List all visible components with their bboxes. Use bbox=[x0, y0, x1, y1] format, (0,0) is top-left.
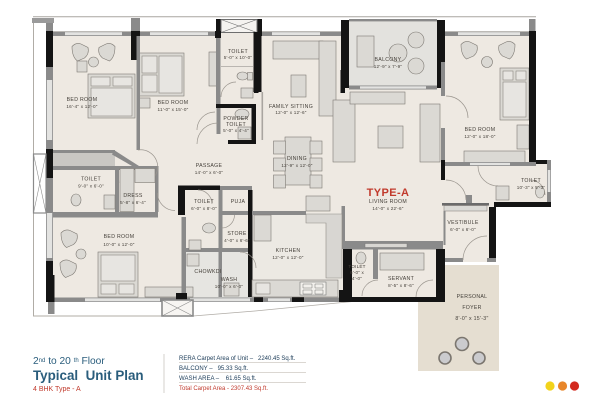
svg-text:WASH AREA – 61.65 Sq.ft.: WASH AREA – 61.65 Sq.ft. bbox=[179, 376, 257, 382]
svg-text:TOILET: TOILET bbox=[194, 199, 214, 205]
svg-text:6'-0" x: 6'-0" x bbox=[350, 270, 365, 275]
svg-text:12'-0" x 12'-6": 12'-0" x 12'-6" bbox=[275, 110, 306, 115]
svg-text:Typical Unit Plan: Typical Unit Plan bbox=[33, 368, 144, 383]
svg-text:5'-0" x 4'-4": 5'-0" x 4'-4" bbox=[223, 128, 249, 133]
svg-text:5'-8" x 6'-4": 5'-8" x 6'-4" bbox=[120, 200, 146, 205]
svg-text:PERSONAL: PERSONAL bbox=[457, 294, 488, 300]
svg-text:8'-0" x 15'-3": 8'-0" x 15'-3" bbox=[455, 316, 488, 322]
svg-text:SERVANT: SERVANT bbox=[388, 276, 415, 282]
svg-text:CHOWKDI: CHOWKDI bbox=[194, 269, 221, 275]
svg-text:RERA Carpet Area of Unit –: RERA Carpet Area of Unit – bbox=[179, 356, 254, 362]
svg-text:Total Carpet Area - 2307.43 Sq: Total Carpet Area - 2307.43 Sq.ft. bbox=[179, 386, 268, 392]
svg-text:KITCHEN: KITCHEN bbox=[276, 248, 301, 254]
svg-text:2240.45 Sq.ft.: 2240.45 Sq.ft. bbox=[258, 356, 296, 362]
svg-text:9'-0" x 6'-0": 9'-0" x 6'-0" bbox=[78, 184, 104, 189]
svg-text:12'-0" x 18'-0": 12'-0" x 18'-0" bbox=[464, 134, 495, 139]
svg-text:BED ROOM: BED ROOM bbox=[465, 127, 496, 133]
svg-text:TOILET: TOILET bbox=[81, 177, 101, 183]
svg-text:12'-9" x 7'-9": 12'-9" x 7'-9" bbox=[374, 64, 403, 69]
svg-text:14'-0" x 6'-0": 14'-0" x 6'-0" bbox=[195, 170, 224, 175]
svg-text:12'-9" x 12'-0": 12'-9" x 12'-0" bbox=[281, 163, 312, 168]
svg-text:VESTIBULE: VESTIBULE bbox=[447, 220, 478, 226]
svg-text:TOILET: TOILET bbox=[521, 178, 541, 184]
svg-text:DRESS: DRESS bbox=[123, 193, 143, 199]
svg-text:14'-0" x 22'-6": 14'-0" x 22'-6" bbox=[372, 206, 403, 211]
svg-text:4 BHK Type - A: 4 BHK Type - A bbox=[33, 386, 81, 393]
svg-text:STORE: STORE bbox=[227, 231, 247, 237]
svg-text:LIVING ROOM: LIVING ROOM bbox=[369, 199, 407, 205]
svg-text:BALCONY: BALCONY bbox=[375, 57, 402, 63]
svg-text:10'-3" x 5'-3": 10'-3" x 5'-3" bbox=[517, 185, 546, 190]
svg-text:6'-0" x 8'-0": 6'-0" x 8'-0" bbox=[191, 206, 217, 211]
svg-text:11'-0" x 15'-0": 11'-0" x 15'-0" bbox=[158, 107, 189, 112]
svg-text:DINING: DINING bbox=[287, 156, 307, 162]
svg-text:TYPE-A: TYPE-A bbox=[367, 187, 410, 199]
svg-text:8'-5" x 8'-6": 8'-5" x 8'-6" bbox=[388, 283, 414, 288]
svg-text:10'-0" x 6'-0": 10'-0" x 6'-0" bbox=[215, 284, 244, 289]
svg-text:12'-0" x 12'-0": 12'-0" x 12'-0" bbox=[272, 255, 303, 260]
svg-text:16'-4" x 12'-0": 16'-4" x 12'-0" bbox=[66, 104, 97, 109]
svg-text:10'-0" x 12'-0": 10'-0" x 12'-0" bbox=[103, 242, 134, 247]
svg-text:BED ROOM: BED ROOM bbox=[158, 100, 189, 106]
svg-text:WASH: WASH bbox=[221, 277, 238, 283]
svg-text:PUJA: PUJA bbox=[231, 199, 246, 205]
svg-text:FOYER: FOYER bbox=[462, 305, 481, 311]
svg-text:TOILET: TOILET bbox=[348, 264, 365, 269]
svg-text:BED ROOM: BED ROOM bbox=[67, 97, 98, 103]
svg-text:BALCONY – 95.33 Sq.ft.: BALCONY – 95.33 Sq.ft. bbox=[179, 366, 249, 372]
svg-text:2nd to 20 th Floor: 2nd to 20 th Floor bbox=[33, 356, 105, 367]
svg-text:BED ROOM: BED ROOM bbox=[104, 234, 135, 240]
svg-text:PASSAGE: PASSAGE bbox=[196, 163, 223, 169]
svg-text:6'-0" x 6'-0": 6'-0" x 6'-0" bbox=[450, 227, 476, 232]
svg-text:5'-0" x 10'-0": 5'-0" x 10'-0" bbox=[224, 55, 253, 60]
svg-text:4'-0" x 6'-6": 4'-0" x 6'-6" bbox=[224, 238, 250, 243]
svg-text:4'-0": 4'-0" bbox=[352, 276, 362, 281]
